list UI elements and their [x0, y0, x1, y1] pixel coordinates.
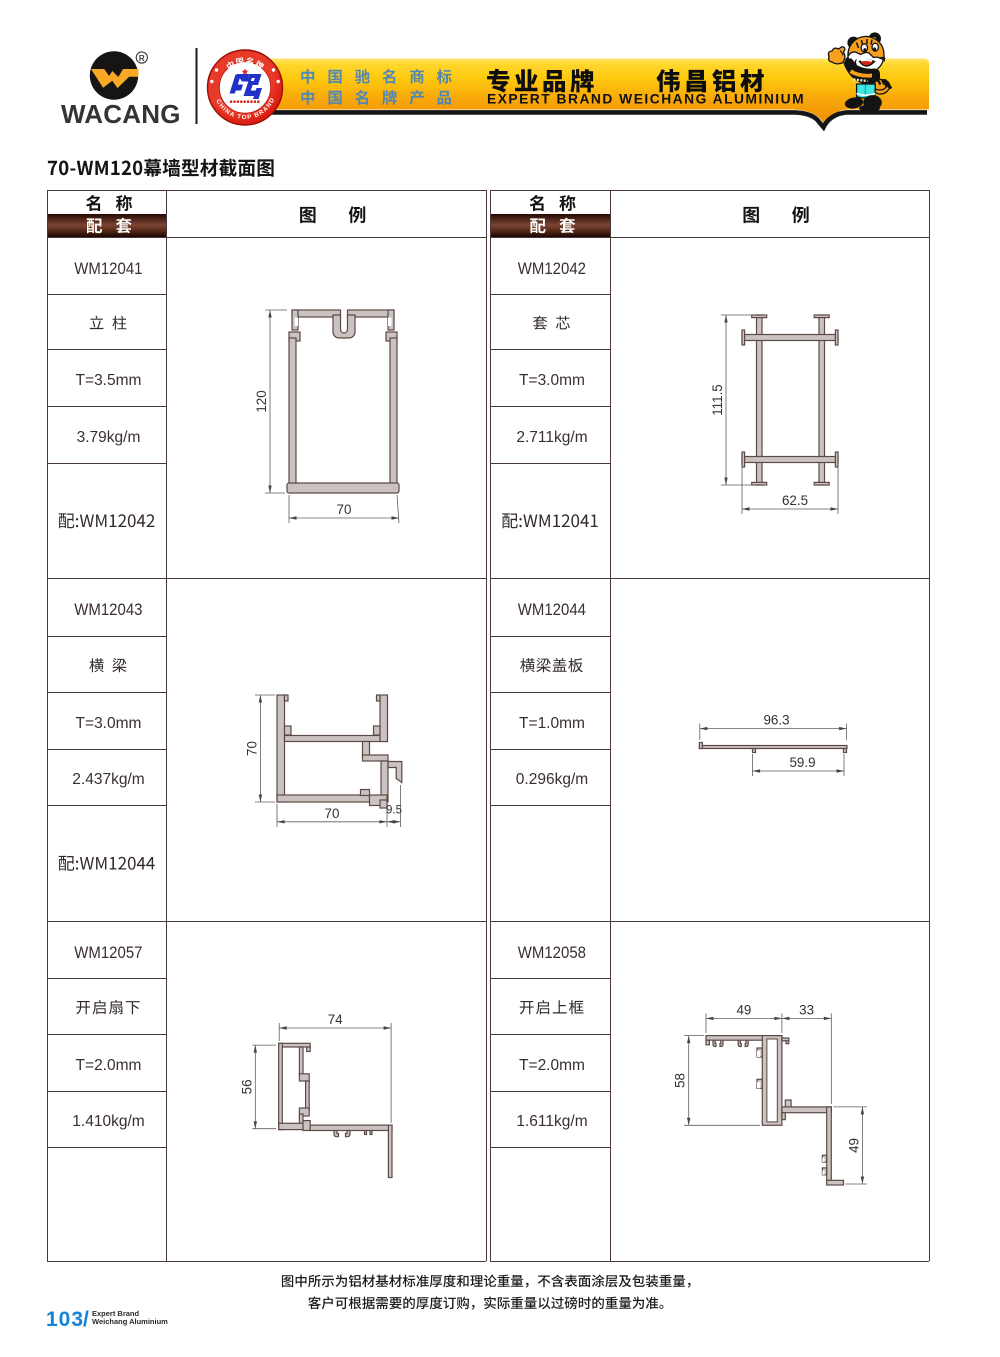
svg-text:33: 33: [799, 1002, 814, 1017]
svg-text:70: 70: [325, 806, 340, 821]
svg-text:62.5: 62.5: [782, 493, 808, 508]
svg-text:120: 120: [254, 390, 269, 412]
svg-text:111.5: 111.5: [710, 384, 725, 416]
svg-text:9.5: 9.5: [386, 805, 402, 817]
svg-text:49: 49: [846, 1138, 861, 1153]
svg-text:58: 58: [673, 1073, 688, 1088]
svg-text:74: 74: [328, 1012, 343, 1027]
svg-text:70: 70: [337, 502, 352, 517]
svg-text:59.9: 59.9: [789, 755, 815, 770]
svg-text:49: 49: [736, 1002, 751, 1017]
svg-text:96.3: 96.3: [763, 713, 789, 728]
svg-text:70: 70: [244, 741, 259, 756]
svg-text:56: 56: [239, 1079, 254, 1094]
